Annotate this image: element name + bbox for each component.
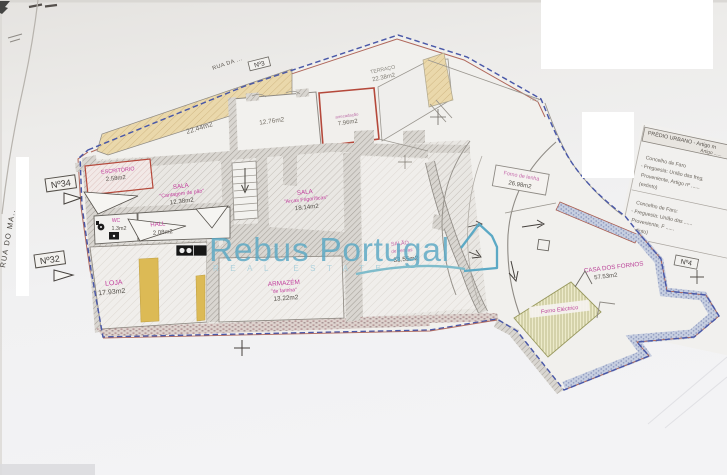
svg-text:WC: WC xyxy=(112,218,121,224)
svg-text:1.3m2: 1.3m2 xyxy=(112,226,127,232)
